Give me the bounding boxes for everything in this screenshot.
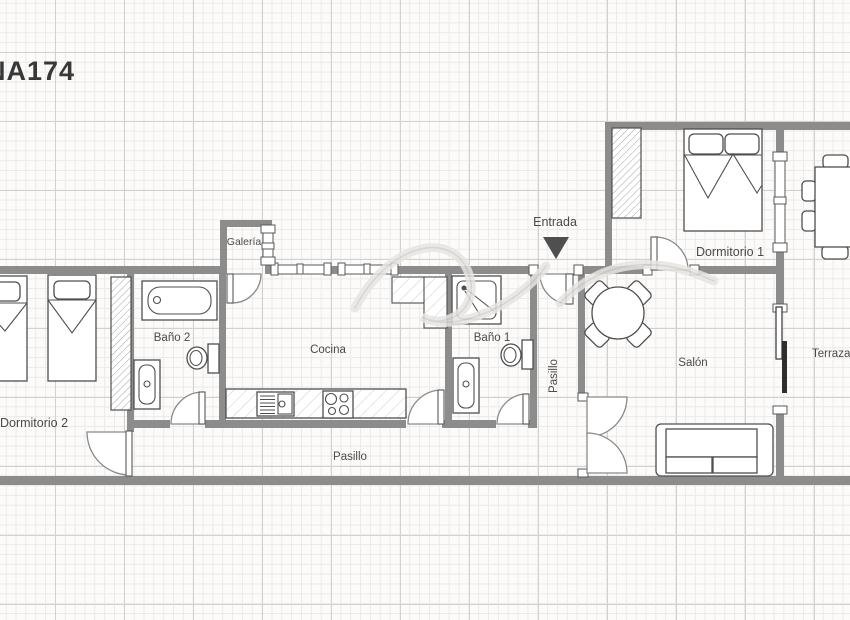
fridge-counter bbox=[392, 277, 425, 303]
entrance-arrow-icon bbox=[543, 237, 569, 259]
wardrobe bbox=[111, 277, 131, 410]
cocina-label: Cocina bbox=[310, 344, 346, 356]
stove bbox=[323, 391, 353, 418]
bathtub bbox=[453, 358, 479, 413]
washbasin-tub bbox=[134, 360, 160, 409]
dormitorio1-furniture bbox=[612, 128, 762, 231]
galeria-window bbox=[261, 225, 275, 265]
terraza-furniture bbox=[802, 155, 850, 259]
wall-segment bbox=[219, 266, 226, 428]
round-table-with-chairs bbox=[583, 279, 653, 349]
bathtub bbox=[142, 281, 217, 320]
single-bed-1 bbox=[0, 276, 27, 381]
pasillo-horizontal-label: Pasillo bbox=[333, 451, 367, 463]
entrada-label: Entrada bbox=[533, 215, 577, 229]
door-jamb bbox=[773, 406, 787, 414]
bano2-furniture bbox=[134, 281, 219, 409]
toilet bbox=[501, 340, 533, 369]
single-bed-2 bbox=[48, 275, 96, 381]
pasillo-vertical-label: Pasillo bbox=[548, 359, 560, 393]
salon-double-door-swing bbox=[587, 397, 627, 473]
cocina-door-swing bbox=[408, 390, 444, 424]
bano1-door-swing bbox=[497, 394, 529, 424]
toilet bbox=[187, 344, 219, 373]
dormitorio2-furniture bbox=[0, 275, 131, 410]
wall-segment bbox=[205, 420, 406, 428]
terraza-label: Terraza bbox=[812, 348, 850, 360]
wardrobe bbox=[612, 128, 641, 218]
wall-segment bbox=[605, 122, 612, 274]
door-jamb bbox=[574, 265, 583, 275]
kitchen-sink bbox=[257, 392, 294, 416]
floor-plan: Entrada Galería Dormitorio 1 Dormitorio … bbox=[0, 0, 850, 620]
worktop-counter bbox=[226, 389, 406, 418]
sofa bbox=[656, 424, 773, 476]
dining-chair bbox=[822, 246, 848, 259]
wall-segment bbox=[776, 274, 784, 306]
terraza-sliding-door bbox=[776, 307, 787, 393]
bano2-label: Baño 2 bbox=[154, 332, 190, 344]
kitchen-window-1 bbox=[271, 263, 331, 275]
dining-chair bbox=[802, 181, 816, 201]
dormitorio1-label: Dormitorio 1 bbox=[696, 245, 764, 259]
dormitorio2-label: Dormitorio 2 bbox=[0, 416, 68, 430]
galeria-door-swing bbox=[227, 274, 261, 303]
wall-segment bbox=[776, 411, 784, 478]
dining-chair bbox=[802, 211, 816, 231]
galeria-label: Galería bbox=[227, 236, 262, 248]
double-bed bbox=[684, 129, 762, 231]
salon-label: Salón bbox=[678, 357, 707, 369]
dining-chair bbox=[823, 155, 848, 168]
dormitorio1-window bbox=[773, 152, 787, 252]
dormitorio2-door-swing bbox=[87, 431, 132, 476]
bano2-door-swing bbox=[171, 392, 205, 424]
wall-segment bbox=[0, 266, 220, 274]
bano1-label: Baño 1 bbox=[474, 332, 510, 344]
wall-segment bbox=[0, 476, 850, 485]
floor-plan-drawing: Entrada Galería Dormitorio 1 Dormitorio … bbox=[0, 0, 850, 620]
dining-table bbox=[815, 167, 850, 247]
plan-reference-id: NA174 bbox=[0, 56, 75, 86]
